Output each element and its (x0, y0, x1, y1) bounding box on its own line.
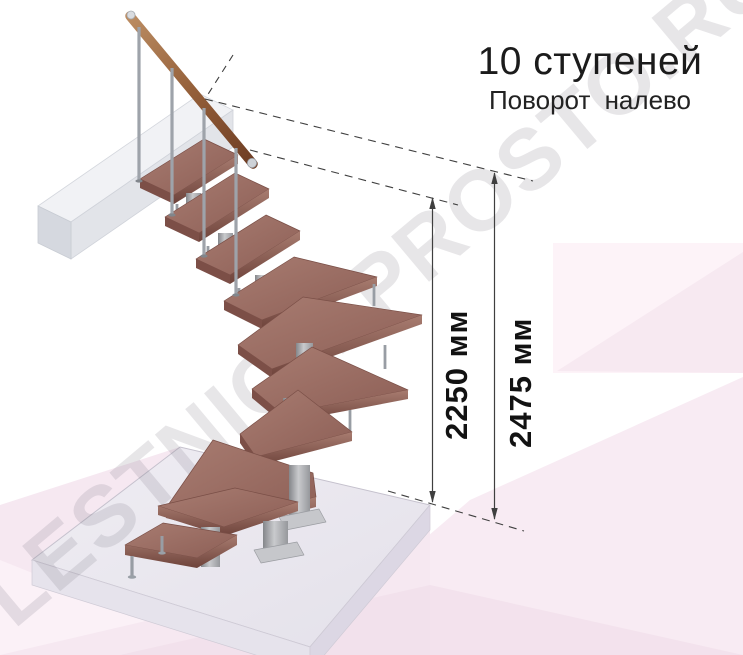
extension-line-corner (205, 55, 233, 99)
dim-total-height-label: 2475 мм (503, 318, 538, 448)
staircase-product-illustration: LESTNICA-PROSTO.RU (0, 0, 743, 655)
page-subtitle: Поворот налево (450, 85, 730, 116)
rail-end-cap (247, 158, 256, 167)
dim-stair-height-label: 2250 мм (439, 310, 474, 440)
page-title: 10 ступеней (450, 40, 730, 84)
rail-top-cap (127, 11, 135, 19)
extension-line-top-tread (250, 150, 458, 205)
arrow-down-icon (429, 491, 435, 503)
